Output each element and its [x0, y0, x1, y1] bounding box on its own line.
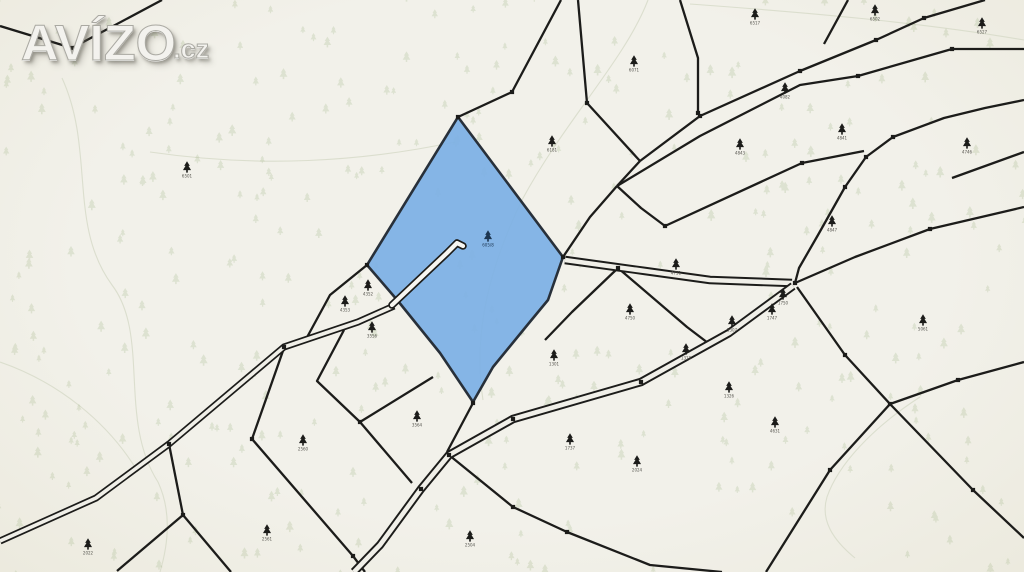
forest-symbol-icon: [260, 156, 265, 163]
forest-symbol-icon: [354, 172, 359, 179]
forest-symbol-icon: [434, 504, 439, 511]
parcel-number: 2024: [632, 468, 643, 473]
forest-symbol-icon: [913, 416, 918, 423]
forest-symbol-icon: [209, 422, 215, 431]
forest-symbol-icon: [277, 430, 283, 438]
forest-symbol-icon: [767, 247, 775, 258]
parcel-marker: 6502: [870, 4, 881, 21]
forest-symbol-icon: [30, 331, 37, 341]
parcel-number: 4751: [671, 271, 682, 276]
forest-symbol-icon: [668, 349, 673, 356]
forest-symbol-icon: [515, 558, 520, 565]
parcel-marker: 6071: [629, 55, 640, 72]
parcel-boundary-line: [449, 455, 722, 572]
forest-symbol-icon: [185, 457, 192, 467]
tree-icon: [364, 279, 372, 290]
forest-symbol-icon: [502, 462, 508, 470]
forest-symbol-icon: [821, 0, 829, 6]
boundary-node: [511, 505, 515, 509]
forest-symbol-icon: [913, 160, 919, 169]
forest-symbol-icon: [541, 564, 549, 572]
forest-symbol-icon: [940, 338, 948, 349]
forest-symbol-icon: [490, 86, 496, 94]
highlighted-parcel[interactable]: [367, 117, 563, 402]
forest-symbol-icon: [240, 547, 248, 558]
boundary-node: [181, 513, 185, 517]
parcel-boundary-line: [360, 377, 433, 422]
forest-symbol-icon: [789, 507, 796, 516]
parcel-marker: 4352: [363, 279, 374, 296]
forest-symbol-icon: [25, 258, 33, 269]
boundary-node: [888, 402, 892, 406]
forest-symbol-icon: [29, 395, 37, 406]
boundary-node: [864, 155, 868, 159]
forest-symbol-icon: [847, 371, 855, 382]
forest-symbol-icon: [122, 288, 129, 298]
parcel-number: 6501: [182, 174, 193, 179]
forest-symbol-icon: [842, 442, 847, 450]
boundary-node: [250, 437, 254, 441]
boundary-node: [793, 281, 797, 285]
forest-symbol-icon: [727, 89, 734, 98]
forest-symbol-icon: [460, 486, 468, 497]
forest-symbol-icon: [758, 358, 764, 367]
contour-line: [0, 362, 138, 472]
forest-symbol-icon: [41, 87, 47, 95]
forest-symbol-icon: [606, 75, 612, 83]
forest-symbol-icon: [736, 61, 741, 68]
forest-symbol-icon: [502, 42, 507, 49]
cadastral-map[interactable]: 6501651765026527607140826181484147464843…: [0, 0, 1024, 572]
forest-symbol-icon: [470, 116, 476, 124]
forest-symbol-icon: [142, 327, 150, 338]
parcel-marker: 1737: [565, 433, 576, 450]
forest-symbol-icon: [753, 208, 758, 215]
forest-symbol-icon: [528, 159, 533, 167]
forest-symbol-icon: [594, 346, 601, 356]
forest-symbol-icon: [332, 366, 340, 377]
parcel-boundary-line: [766, 404, 890, 572]
forest-symbol-icon: [259, 271, 266, 280]
forest-symbol-icon: [957, 324, 965, 335]
brand-logo-text: AVÍZO: [21, 14, 176, 72]
forest-symbol-icon: [402, 0, 410, 2]
forest-symbol-icon: [41, 347, 46, 354]
forest-symbol-icon: [49, 472, 55, 480]
parcel-number: 1747: [767, 316, 778, 321]
forest-symbol-icon: [166, 400, 174, 411]
forest-symbol-icon: [998, 498, 1004, 506]
forest-symbol-icon: [435, 371, 440, 379]
parcel-marker: 4353: [340, 295, 351, 312]
forest-symbol-icon: [734, 398, 741, 407]
forest-symbol-icon: [683, 73, 690, 83]
tree-icon: [341, 295, 349, 306]
forest-symbol-icon: [903, 247, 911, 258]
forest-symbol-icon: [97, 321, 105, 332]
parcel-number: 4841: [837, 136, 848, 141]
forest-symbol-icon: [69, 437, 74, 444]
forest-symbol-icon: [715, 482, 722, 492]
forest-symbol-icon: [762, 0, 769, 5]
forest-symbol-icon: [34, 446, 42, 457]
parcel-boundary-line: [890, 404, 1024, 538]
parcel-boundary-line: [640, 0, 985, 161]
forest-symbol-icon: [617, 439, 624, 449]
forest-symbol-icon: [916, 352, 922, 360]
forest-symbol-icon: [845, 80, 851, 88]
forest-symbol-icon: [1005, 558, 1010, 565]
forest-symbol-icon: [363, 348, 368, 356]
forest-symbol-icon: [311, 33, 317, 41]
forest-symbol-icon: [508, 551, 514, 560]
forest-symbol-icon: [986, 37, 994, 48]
forest-symbol-icon: [3, 147, 9, 156]
forest-symbol-icon: [36, 355, 41, 362]
forest-symbol-icon: [289, 112, 296, 122]
forest-symbol-icon: [735, 486, 740, 493]
parcel-boundary-line: [824, 0, 848, 44]
forest-symbol-icon: [285, 273, 292, 283]
forest-symbol-icon: [728, 66, 736, 78]
forest-symbol-icon: [768, 460, 775, 470]
forest-symbol-icon: [268, 5, 274, 13]
forest-symbol-icon: [312, 418, 318, 426]
forest-symbol-icon: [986, 563, 994, 572]
parcel-marker: 6501: [182, 161, 193, 178]
forest-symbol-icon: [543, 38, 548, 45]
parcel-marker: 5061: [918, 314, 929, 331]
forest-symbol-icon: [10, 294, 15, 302]
forest-symbol-icon: [561, 284, 567, 292]
forest-symbol-icon: [502, 0, 509, 8]
boundary-node: [843, 353, 847, 357]
forest-symbol-icon: [168, 247, 174, 256]
forest-symbol-icon: [274, 487, 280, 496]
forest-symbol-icon: [887, 501, 894, 511]
forest-symbol-icon: [200, 354, 208, 365]
tree-icon: [550, 349, 558, 360]
forest-symbol-icon: [35, 428, 41, 437]
forest-symbol-icon: [349, 281, 355, 289]
forest-symbol-icon: [723, 438, 729, 446]
forest-symbol-icon: [188, 536, 193, 544]
forest-symbol-icon: [129, 149, 135, 157]
forest-symbol-icon: [335, 508, 341, 516]
forest-symbol-icon: [838, 373, 845, 383]
forest-symbol-icon: [149, 171, 157, 182]
forest-symbol-icon: [228, 124, 236, 136]
forest-symbol-icon: [506, 365, 514, 376]
forest-symbol-icon: [806, 103, 814, 114]
forest-symbol-icon: [28, 303, 35, 313]
parcel-number: 2504: [465, 543, 476, 548]
parcel-number: 4746: [962, 150, 973, 155]
forest-symbol-icon: [355, 537, 362, 547]
forest-symbol-icon: [863, 330, 870, 339]
forest-symbol-icon: [215, 132, 223, 143]
forest-symbol-icon: [471, 5, 476, 13]
forest-symbol-icon: [16, 517, 24, 528]
forest-symbol-icon: [253, 214, 259, 223]
boundary-node: [561, 255, 565, 259]
parcel-number: 1301: [549, 362, 560, 367]
parcel-number: 4847: [827, 228, 838, 233]
brand-watermark: AVÍZO.cz: [24, 14, 209, 72]
boundary-node: [511, 417, 515, 421]
tree-icon: [466, 530, 474, 541]
forest-symbol-icon: [828, 123, 834, 131]
forest-symbol-icon: [488, 387, 496, 398]
brand-logo-suffix: .cz: [173, 34, 209, 65]
boundary-node: [616, 266, 620, 270]
highlighted-parcel-shape[interactable]: [367, 117, 563, 402]
forest-symbol-icon: [76, 404, 81, 411]
forest-symbol-icon: [943, 28, 950, 37]
forest-symbol-icon: [662, 52, 667, 59]
forest-symbol-icon: [176, 74, 184, 85]
forest-symbol-icon: [396, 139, 401, 146]
parcel-number: 6517: [750, 21, 761, 26]
forest-symbol-icon: [300, 26, 305, 33]
tree-icon: [630, 55, 638, 66]
forest-symbol-icon: [847, 465, 853, 473]
forest-symbol-icon: [71, 431, 77, 439]
forest-symbol-icon: [379, 166, 385, 174]
parcel-marker: 2561: [262, 524, 273, 541]
forest-symbol-icon: [651, 566, 656, 572]
forest-symbol-icon: [749, 482, 756, 492]
forest-symbol-icon: [729, 457, 734, 465]
forest-symbol-icon: [806, 176, 812, 184]
tree-icon: [633, 455, 641, 466]
forest-symbol-icon: [761, 210, 767, 218]
boundary-node: [874, 38, 878, 42]
parcel-number: 5307: [727, 328, 738, 333]
forest-symbol-icon: [315, 228, 322, 238]
forest-symbol-icon: [66, 481, 71, 488]
boundary-node: [358, 420, 362, 424]
forest-symbol-icon: [38, 103, 46, 114]
forest-symbol-icon: [68, 537, 75, 547]
forest-symbol-icon: [237, 41, 243, 50]
forest-symbol-icon: [120, 142, 126, 150]
forest-symbol-icon: [194, 154, 201, 163]
parcel-number: 4750: [625, 316, 636, 321]
parcel-marker: 4631: [770, 416, 781, 433]
tree-icon: [871, 4, 879, 15]
tree-icon: [751, 8, 759, 19]
forest-symbol-icon: [8, 63, 14, 72]
forest-symbol-icon: [861, 0, 868, 5]
forest-symbol-icon: [375, 292, 382, 302]
boundary-node: [585, 101, 589, 105]
forest-symbol-icon: [27, 71, 35, 82]
parcel-boundary-line: [890, 362, 1024, 404]
forest-symbol-icon: [26, 250, 34, 261]
forest-symbol-icon: [286, 521, 294, 532]
forest-symbol-icon: [537, 151, 543, 160]
forest-symbol-icon: [878, 74, 885, 84]
tree-icon: [566, 433, 574, 444]
forest-symbol-icon: [304, 193, 311, 202]
forest-symbol-icon: [971, 221, 977, 230]
parcel-boundary-line: [360, 422, 412, 483]
tree-icon: [725, 381, 733, 392]
map-viewport: 6501651765026527607140826181484147464843…: [0, 0, 1024, 572]
parcel-boundary-line: [797, 287, 890, 404]
forest-symbol-icon: [593, 64, 601, 76]
parcel-number: 1326: [724, 394, 735, 399]
parcel-number: 5061: [918, 327, 929, 332]
forest-symbol-icon: [966, 206, 974, 217]
road-strips: [0, 260, 793, 572]
forest-symbol-icon: [1012, 160, 1019, 170]
contour-line: [690, 4, 1024, 40]
forest-symbol-icon: [658, 261, 664, 269]
parcel-boundary-line: [169, 444, 183, 515]
parcel-number: 3556: [367, 334, 378, 339]
forest-symbol-icon: [159, 190, 167, 201]
parcel-marker: 4843: [735, 138, 746, 155]
forest-symbol-icon: [751, 365, 759, 376]
forest-symbol-icon: [892, 352, 900, 363]
forest-symbol-icon: [888, 392, 893, 400]
boundary-node: [365, 263, 369, 267]
parcel-marker: 6517: [750, 8, 761, 25]
boundary-node: [843, 185, 847, 189]
forest-symbol-icon: [167, 117, 173, 125]
forest-symbol-icon: [402, 363, 409, 373]
forest-symbol-icon: [531, 0, 537, 2]
forest-symbol-icon: [232, 0, 238, 8]
forest-symbol-icon: [504, 436, 510, 444]
forest-symbol-icon: [582, 117, 588, 125]
parcel-marker: 1301: [549, 349, 560, 366]
forest-symbol-icon: [965, 436, 972, 446]
parcel-boundary-line: [617, 151, 864, 226]
forest-symbol-icon: [352, 295, 360, 306]
boundary-node: [800, 161, 804, 165]
boundary-node: [922, 16, 926, 20]
boundary-node: [447, 453, 451, 457]
forest-symbol-icon: [190, 340, 197, 349]
tree-icon: [771, 416, 779, 427]
forest-symbol-icon: [254, 548, 261, 558]
parcel-marker: 2560: [298, 434, 309, 451]
forest-symbol-icon: [237, 190, 243, 198]
forest-symbol-icon: [763, 185, 770, 195]
forest-symbol-icon: [762, 149, 768, 158]
forest-symbol-icon: [907, 226, 913, 234]
forest-symbol-icon: [791, 138, 798, 148]
boundary-node: [950, 47, 954, 51]
forest-symbol-icon: [779, 103, 785, 111]
forest-symbol-icon: [239, 444, 245, 453]
forest-symbol-icon: [0, 0, 1, 3]
tree-icon: [736, 138, 744, 149]
forest-symbol-icon: [439, 387, 444, 394]
parcel-boundary-line: [317, 330, 360, 422]
tree-icon: [183, 161, 191, 172]
forest-symbol-icon: [260, 298, 266, 306]
forest-symbol-icon: [280, 68, 288, 79]
forest-symbol-icon: [527, 560, 535, 571]
forest-symbol-icon: [980, 485, 986, 494]
forest-symbol-icon: [803, 226, 810, 235]
forest-symbol-icon: [42, 409, 49, 419]
parcel-marker: 4751: [671, 258, 682, 275]
forest-symbol-icon: [923, 169, 928, 177]
forest-symbol-icon: [888, 464, 894, 473]
forest-symbol-icon: [611, 36, 618, 46]
parcel-marker: 2024: [632, 455, 643, 472]
forest-symbol-icon: [912, 323, 918, 331]
forest-symbol-icon: [551, 56, 559, 67]
parcel-number: 6527: [977, 30, 988, 35]
forest-symbol-icon: [268, 491, 276, 502]
forest-symbol-icon: [0, 501, 1, 510]
forest-symbol-icon: [505, 168, 512, 178]
forest-symbol-icon: [260, 187, 266, 196]
parcel-number: 6071: [629, 68, 640, 73]
forest-symbol-icon: [898, 180, 906, 191]
forest-symbol-icon: [555, 375, 562, 385]
parcel-number: 6181: [547, 148, 558, 153]
forest-symbol-icon: [936, 166, 944, 178]
boundary-node: [565, 530, 569, 534]
forest-symbol-icon: [846, 117, 852, 126]
forest-symbol-icon: [120, 174, 128, 185]
forest-symbol-icon: [20, 415, 25, 422]
tree-icon: [413, 410, 421, 421]
parcel-boundary-line: [680, 0, 698, 113]
forest-symbol-icon: [493, 60, 500, 70]
parcel-number: 3564: [412, 423, 423, 428]
forest-symbol-icon: [804, 426, 810, 434]
forest-symbol-icon: [155, 418, 161, 426]
forest-symbol-icon: [605, 350, 611, 359]
forest-symbol-icon: [905, 550, 910, 558]
forest-symbol-icon: [345, 165, 351, 174]
boundary-node: [456, 115, 460, 119]
forest-symbol-icon: [322, 103, 329, 113]
forest-symbol-icon: [946, 535, 953, 545]
forest-symbol-icon: [66, 380, 72, 388]
forest-symbol-icon: [372, 382, 379, 392]
parcel-number: 4631: [770, 429, 781, 434]
boundary-node: [856, 74, 860, 78]
parcel-marker: 1326: [724, 381, 735, 398]
forest-symbol-icon: [238, 362, 246, 373]
forest-symbol-icon: [921, 71, 929, 82]
road-strip-outline: [0, 306, 394, 541]
forest-symbol-icon: [829, 395, 834, 402]
parcel-marker: 2022: [83, 538, 94, 555]
forest-symbol-icon: [445, 518, 453, 529]
forest-symbol-icon: [253, 350, 261, 361]
forest-symbol-icon: [414, 139, 419, 147]
boundary-node: [971, 488, 975, 492]
parcel-number: 4082: [780, 95, 791, 100]
forest-symbol-icon: [635, 364, 643, 375]
parcel-boundary-line: [458, 0, 561, 117]
forest-symbol-icon: [442, 100, 448, 109]
forest-symbol-icon: [361, 497, 367, 505]
tree-icon: [84, 538, 92, 549]
parcel-number: 1318: [681, 356, 692, 361]
forest-symbol-icon: [928, 212, 936, 223]
